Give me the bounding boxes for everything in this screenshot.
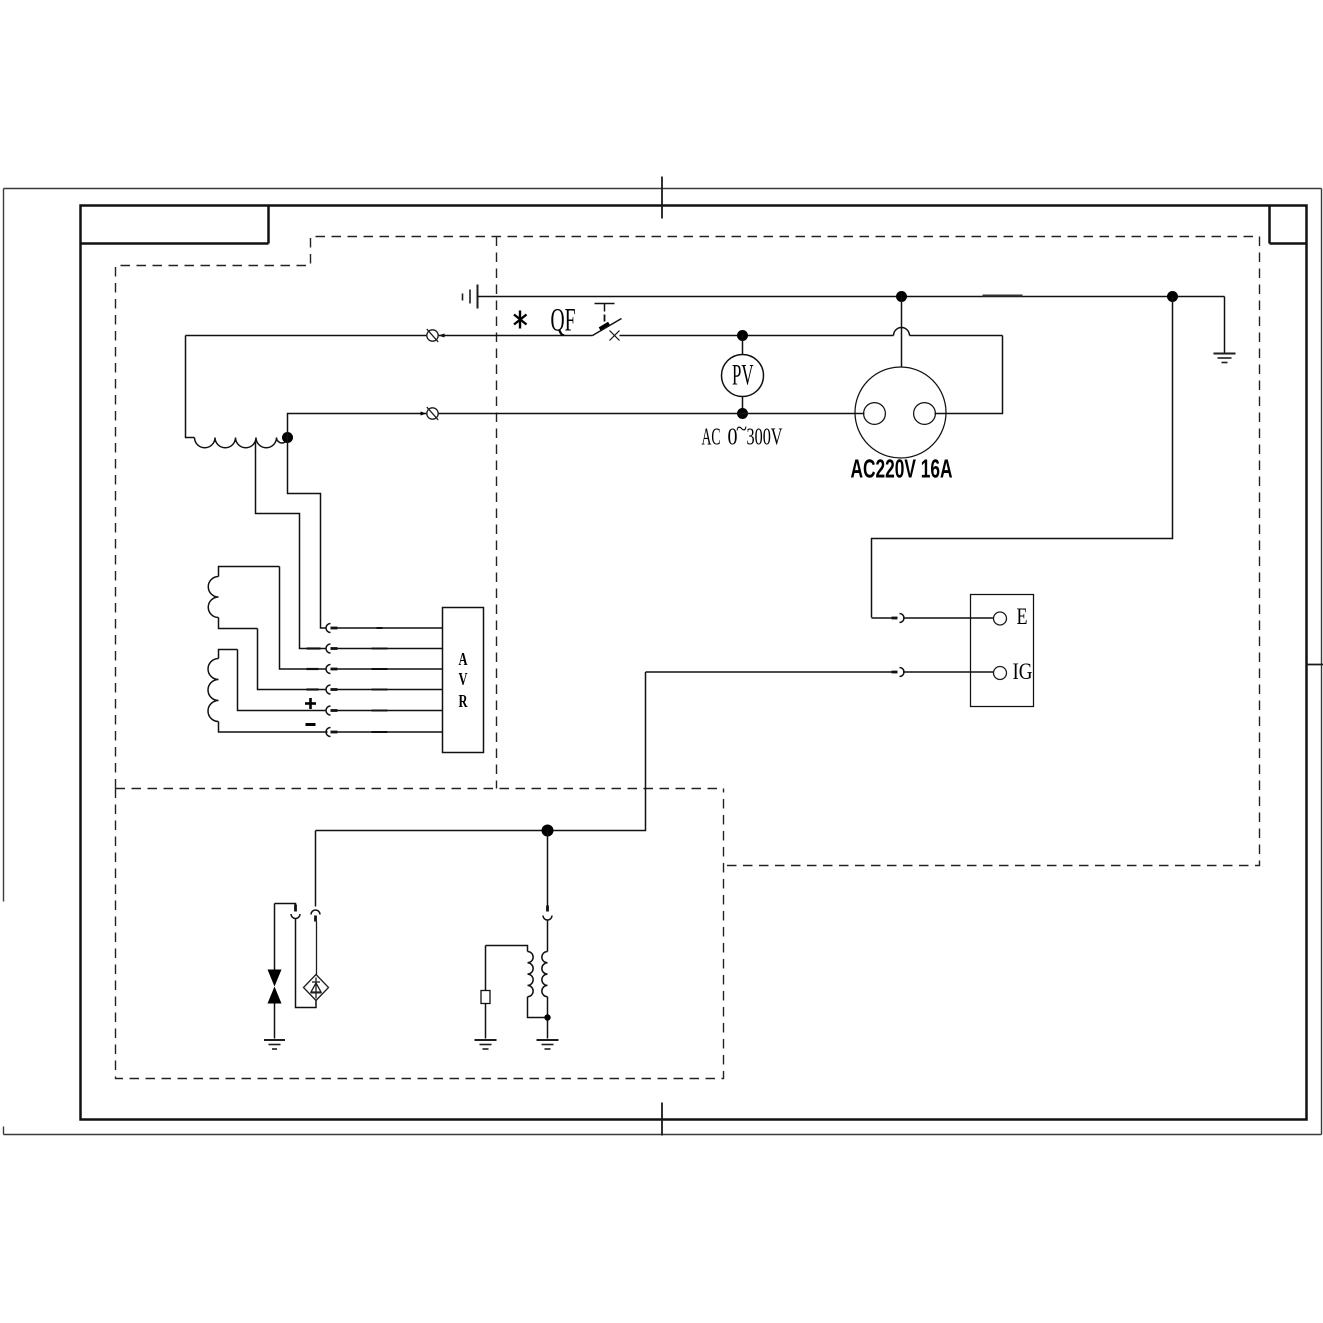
svg-text:AC: AC — [702, 425, 721, 451]
svg-text:AC220V 16A: AC220V 16A — [851, 454, 953, 484]
svg-text:V: V — [459, 669, 468, 689]
svg-text:IG: IG — [1013, 659, 1033, 684]
svg-text:A: A — [459, 649, 468, 669]
svg-text:E: E — [1017, 604, 1028, 629]
svg-text:R: R — [459, 691, 469, 711]
svg-text:300V: 300V — [747, 425, 783, 451]
svg-text:~: ~ — [736, 417, 747, 443]
svg-text:PV: PV — [732, 359, 754, 392]
svg-text:QF: QF — [551, 303, 576, 339]
